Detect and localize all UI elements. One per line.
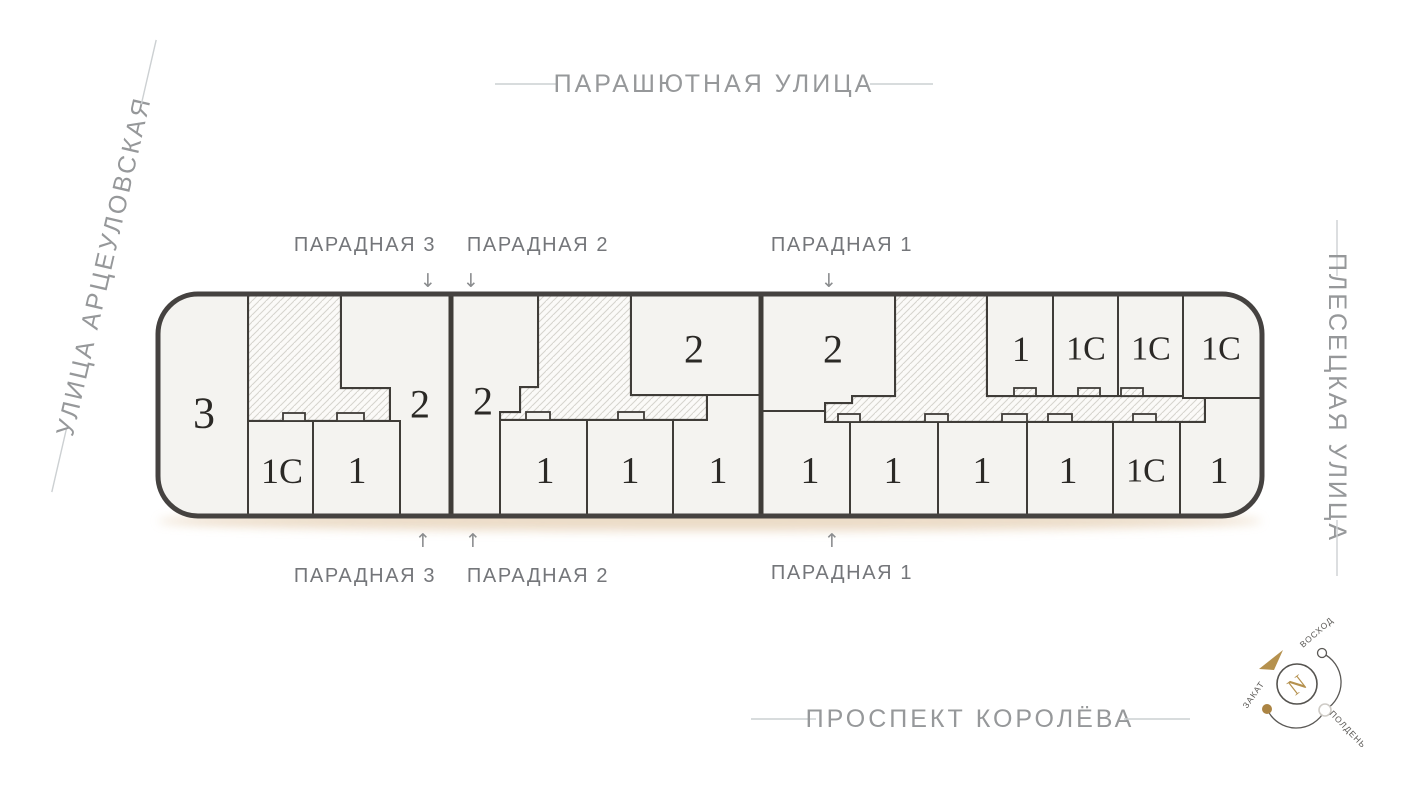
arrow-up-icon: ↑ bbox=[824, 530, 840, 552]
entrance-top-2: ПАРАДНАЯ 2 bbox=[467, 234, 609, 256]
street-right-label: ПЛЕСЕЦКАЯ УЛИЦА bbox=[1323, 253, 1351, 543]
street-left: УЛИЦА АРЦЕУЛОВСКАЯ bbox=[38, 37, 170, 495]
vestibule-notch bbox=[1048, 414, 1072, 422]
unit-label: 2 bbox=[473, 379, 493, 424]
unit-label: 3 bbox=[193, 389, 215, 438]
vestibule-notch bbox=[1078, 388, 1100, 396]
street-top: ПАРАШЮТНАЯ УЛИЦА bbox=[495, 70, 933, 98]
unit-label: 1С bbox=[1131, 331, 1171, 368]
arrow-down-icon: ↓ bbox=[821, 270, 837, 292]
entrance-bottom-1: ПАРАДНАЯ 1 bbox=[771, 562, 913, 584]
entrance-top-1: ПАРАДНАЯ 1 bbox=[771, 234, 913, 256]
unit-label: 1С bbox=[1066, 331, 1106, 368]
unit-label: 1 bbox=[1059, 450, 1078, 492]
unit-label: 1С bbox=[261, 451, 303, 491]
northwest-arrow-icon bbox=[1259, 650, 1283, 670]
street-top-label: ПАРАШЮТНАЯ УЛИЦА bbox=[554, 70, 875, 98]
vestibule-notch bbox=[838, 414, 860, 422]
entrance-bottom-2: ПАРАДНАЯ 2 bbox=[467, 565, 609, 587]
entrance-top-3: ПАРАДНАЯ 3 bbox=[294, 234, 436, 256]
street-left-line-a bbox=[52, 428, 67, 492]
vestibule-notch bbox=[1014, 388, 1036, 396]
street-left-line-b bbox=[141, 40, 156, 104]
entrances-top: ПАРАДНАЯ 3 ПАРАДНАЯ 2 ПАРАДНАЯ 1 ↓ ↓ ↓ bbox=[294, 234, 913, 292]
entrance-bottom-3: ПАРАДНАЯ 3 bbox=[294, 565, 436, 587]
unit-label: 1С bbox=[1126, 453, 1166, 490]
unit-label: 1 bbox=[1210, 450, 1229, 492]
compass-sunrise-label: ВОСХОД bbox=[1298, 615, 1336, 650]
arrow-up-icon: ↑ bbox=[465, 530, 481, 552]
unit-label: 1 bbox=[348, 450, 367, 492]
vestibule-notch bbox=[526, 412, 550, 420]
arrow-up-icon: ↑ bbox=[415, 530, 431, 552]
unit-label: 1 bbox=[884, 450, 903, 492]
vestibule-notch bbox=[1002, 414, 1027, 422]
vestibule-notch bbox=[925, 414, 948, 422]
sunrise-marker-icon bbox=[1318, 649, 1327, 658]
compass-sunset-label: ЗАКАТ bbox=[1240, 679, 1266, 710]
unit-label: 1 bbox=[621, 450, 640, 492]
vestibule-notch bbox=[337, 413, 364, 421]
street-left-label: УЛИЦА АРЦЕУЛОВСКАЯ bbox=[51, 93, 157, 439]
street-right: ПЛЕСЕЦКАЯ УЛИЦА bbox=[1323, 220, 1351, 576]
compass-noon-label: ПОЛДЕНЬ bbox=[1328, 708, 1369, 750]
unit-label: 1С bbox=[1201, 331, 1241, 368]
arrow-down-icon: ↓ bbox=[463, 270, 479, 292]
unit-label: 1 bbox=[536, 450, 555, 492]
unit-label: 2 bbox=[684, 327, 704, 372]
vestibule-notch bbox=[1133, 414, 1156, 422]
entrances-bottom: ↑ ↑ ↑ ПАРАДНАЯ 3 ПАРАДНАЯ 2 ПАРАДНАЯ 1 bbox=[294, 530, 913, 587]
vestibule-notch bbox=[1121, 388, 1143, 396]
unit-label: 1 bbox=[1012, 329, 1030, 369]
compass: N ВОСХОД ЗАКАТ ПОЛДЕНЬ bbox=[1240, 615, 1368, 750]
unit-label: 1 bbox=[801, 450, 820, 492]
street-bottom-label: ПРОСПЕКТ КОРОЛЁВА bbox=[806, 705, 1135, 733]
arrow-down-icon: ↓ bbox=[420, 270, 436, 292]
unit-label: 2 bbox=[823, 327, 843, 372]
street-bottom: ПРОСПЕКТ КОРОЛЁВА bbox=[751, 705, 1190, 733]
unit-label: 1 bbox=[709, 450, 728, 492]
unit-label: 2 bbox=[410, 382, 430, 427]
unit-label: 1 bbox=[973, 450, 992, 492]
vestibule-notch bbox=[283, 413, 305, 421]
sunset-marker-icon bbox=[1262, 704, 1272, 714]
site-plan: 321С122111211С1С1С11111С1 ПАРАШЮТНАЯ УЛИ… bbox=[0, 0, 1416, 796]
vestibule-notch bbox=[618, 412, 644, 420]
